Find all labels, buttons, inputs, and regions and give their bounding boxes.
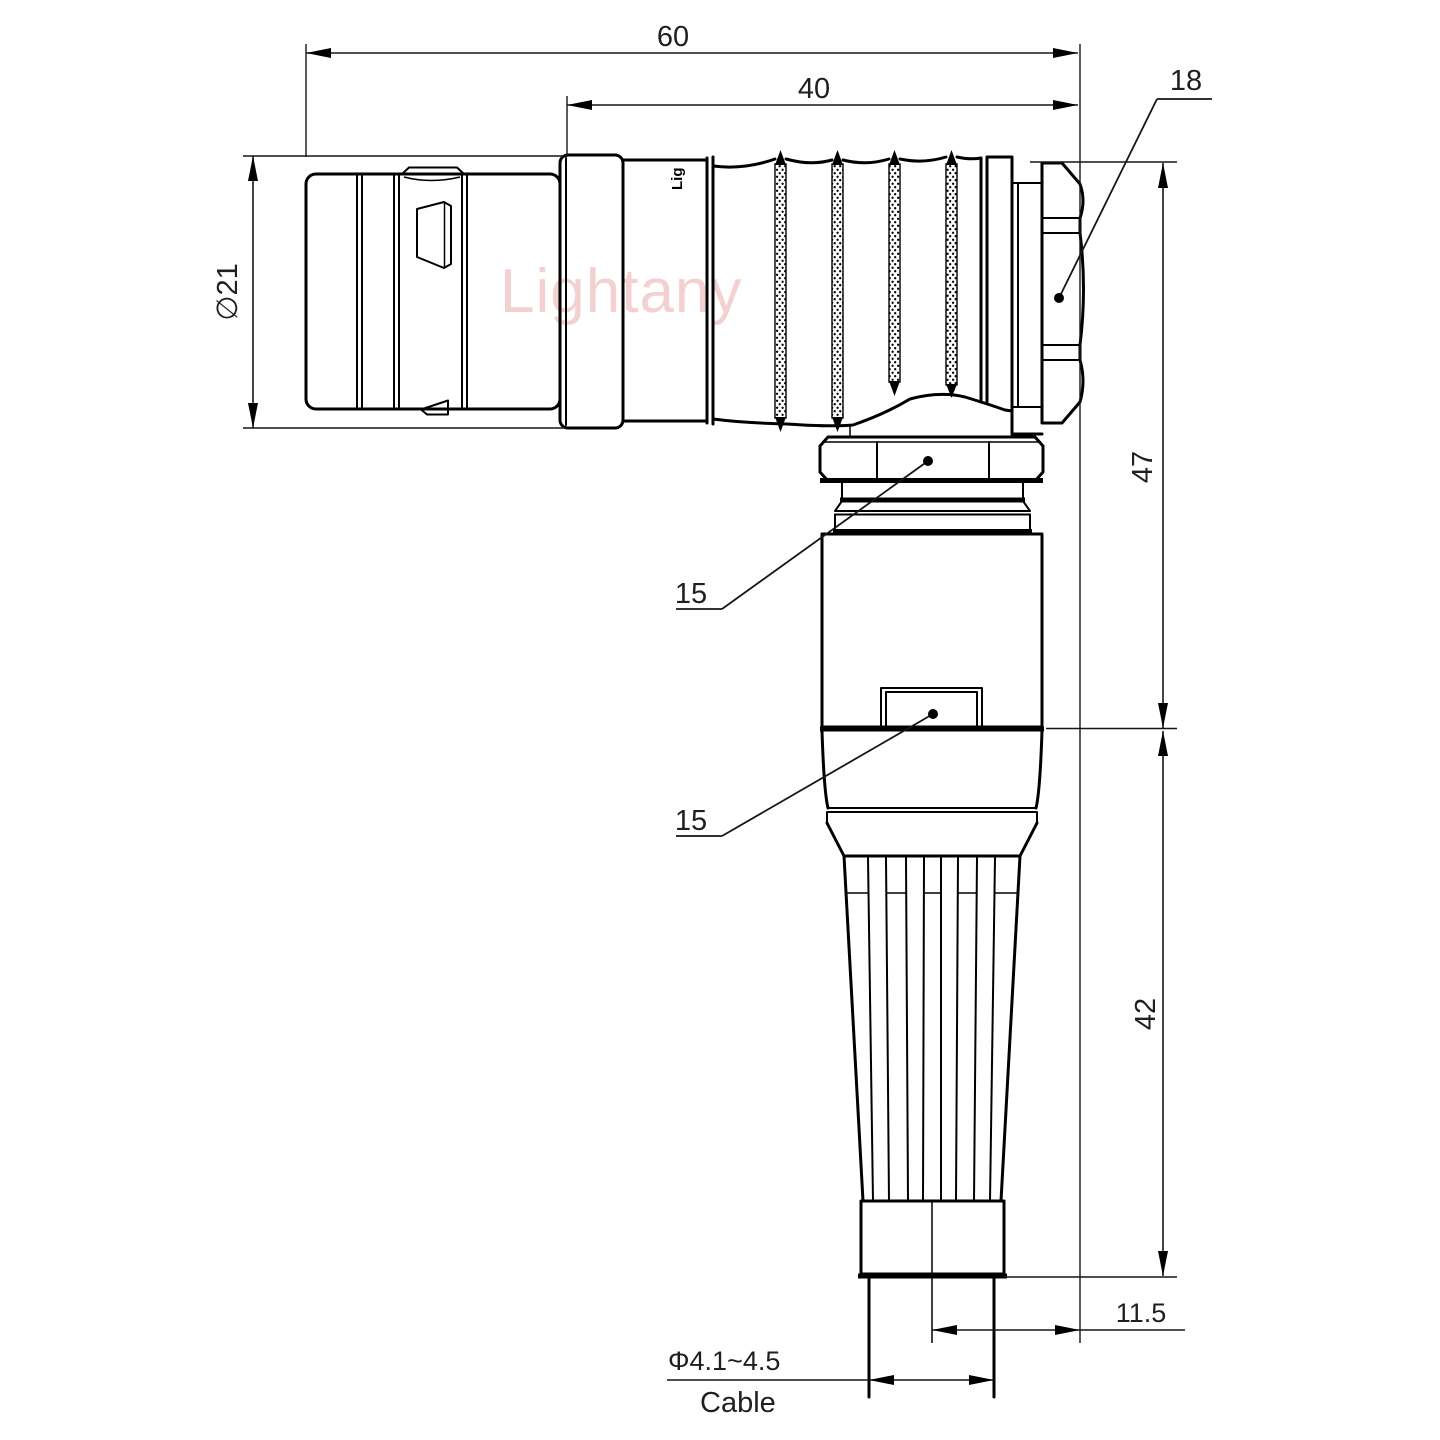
dim-cable-diameter-label: Φ4.1~4.5 (668, 1346, 780, 1376)
connector-drawing-canvas: Lightany Lig (0, 0, 1440, 1440)
dim-coupling-nut-label: 15 (675, 578, 707, 610)
dim-rear-length-label: 40 (798, 73, 830, 105)
dim-clip-label: 15 (675, 805, 707, 837)
part-engraving-text: Lig (669, 168, 686, 191)
leader-18-dot (1054, 293, 1064, 303)
leader-15-nut-dot (923, 456, 933, 466)
dim-boot-height-label: 42 (1130, 998, 1162, 1030)
dim-shell-diameter-label: ∅21 (212, 263, 244, 321)
dim-nut-size-label: 18 (1170, 65, 1202, 97)
dim-total-length-label: 60 (657, 21, 689, 53)
technical-drawing-page: Lightany Lig (0, 0, 1440, 1440)
leader-15-clip-dot (928, 709, 938, 719)
cable-caption: Cable (700, 1387, 776, 1419)
background (0, 0, 1440, 1440)
dim-elbow-height-label: 47 (1127, 451, 1159, 483)
dim-cable-offset-label: 11.5 (1116, 1298, 1167, 1328)
